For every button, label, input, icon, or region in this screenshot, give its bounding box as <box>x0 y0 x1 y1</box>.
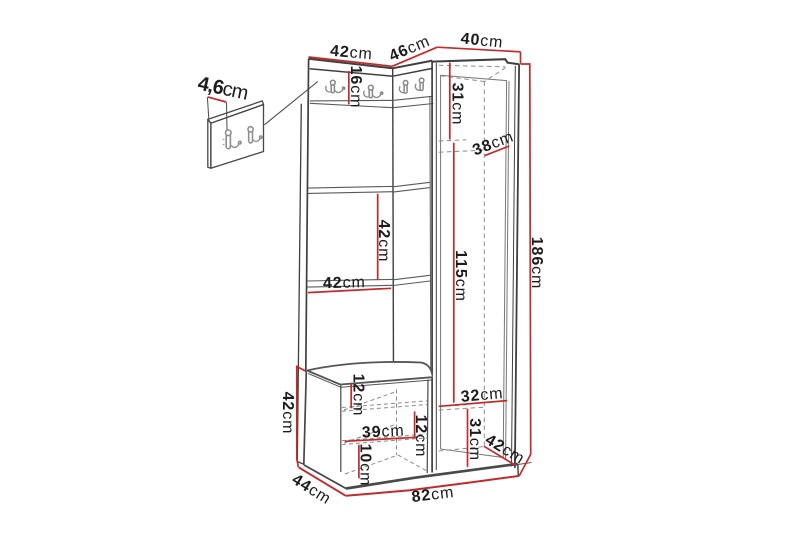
svg-text:12cm: 12cm <box>412 415 429 458</box>
svg-text:16cm: 16cm <box>347 66 364 109</box>
svg-text:31cm: 31cm <box>466 418 483 461</box>
svg-text:31cm: 31cm <box>449 83 466 126</box>
svg-text:42cm: 42cm <box>375 220 392 263</box>
svg-text:186cm: 186cm <box>528 237 545 290</box>
svg-text:42cm: 42cm <box>323 274 366 292</box>
svg-text:115cm: 115cm <box>452 250 469 302</box>
svg-text:39cm: 39cm <box>361 422 405 441</box>
svg-text:12cm: 12cm <box>349 374 366 417</box>
svg-text:42cm: 42cm <box>279 392 296 435</box>
svg-text:10cm: 10cm <box>357 444 374 487</box>
